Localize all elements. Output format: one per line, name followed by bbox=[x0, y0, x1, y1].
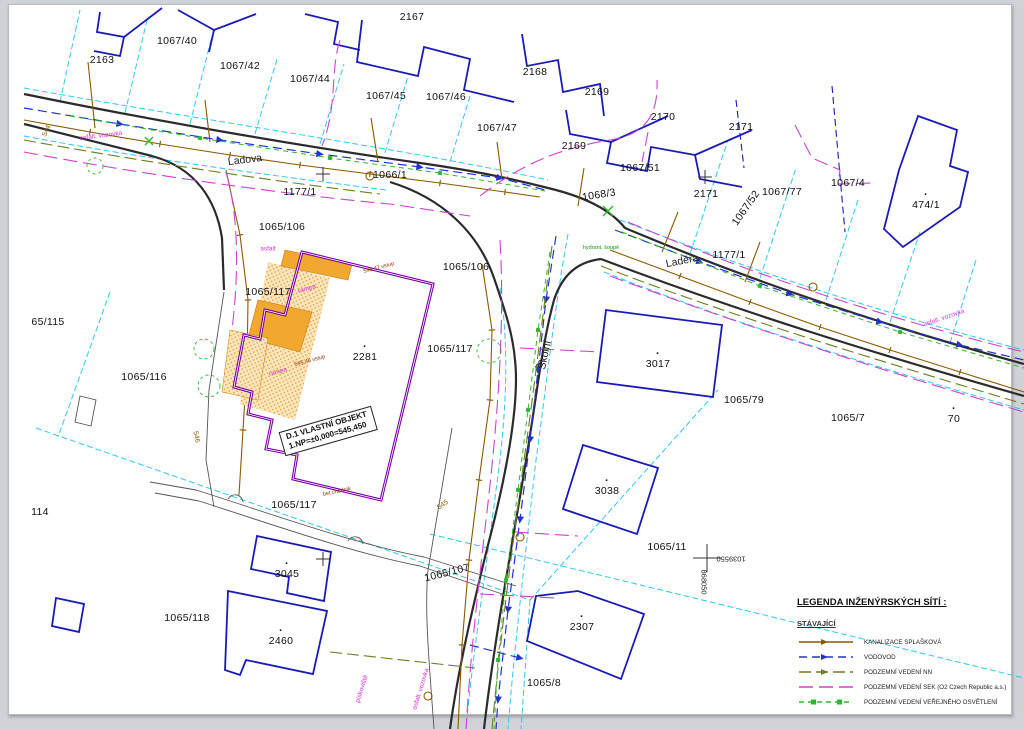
building-outlines bbox=[52, 8, 968, 679]
parcel-dashed-lines bbox=[736, 86, 845, 232]
legend-subtitle: STÁVAJÍCÍ bbox=[797, 619, 1017, 628]
legend-item-label: PODZEMNÍ VEDENÍ SEK (O2 Czech Republic a… bbox=[864, 684, 1006, 691]
legend-item-2: PODZEMNÍ VEDENÍ NN bbox=[797, 667, 1017, 677]
legend-line-sample bbox=[797, 652, 855, 662]
legend-line-sample bbox=[797, 682, 855, 692]
main-building bbox=[222, 250, 433, 500]
legend-title: LEGENDA INŽENÝRSKÝCH SÍTÍ : bbox=[797, 597, 1017, 608]
legend-item-label: PODZEMNÍ VEDENÍ NN bbox=[864, 669, 932, 676]
street-light-symbols bbox=[145, 137, 613, 216]
legend-item-label: PODZEMNÍ VEDENÍ VEŘEJNÉHO OSVĚTLENÍ bbox=[864, 699, 997, 706]
legend-items: KANALIZACE SPLAŠKOVÁVODOVODPODZEMNÍ VEDE… bbox=[797, 637, 1017, 707]
legend-item-3: PODZEMNÍ VEDENÍ SEK (O2 Czech Republic a… bbox=[797, 682, 1017, 692]
legend-item-4: PODZEMNÍ VEDENÍ VEŘEJNÉHO OSVĚTLENÍ bbox=[797, 697, 1017, 707]
legend-line-sample bbox=[797, 697, 855, 707]
legend-item-label: KANALIZACE SPLAŠKOVÁ bbox=[864, 639, 941, 646]
legend-line-sample bbox=[797, 667, 855, 677]
utilities-legend: LEGENDA INŽENÝRSKÝCH SÍTÍ : STÁVAJÍCÍ KA… bbox=[797, 597, 1017, 712]
legend-item-1: VODOVOD bbox=[797, 652, 1017, 662]
legend-line-sample bbox=[797, 637, 855, 647]
legend-item-label: VODOVOD bbox=[864, 654, 896, 661]
legend-item-0: KANALIZACE SPLAŠKOVÁ bbox=[797, 637, 1017, 647]
